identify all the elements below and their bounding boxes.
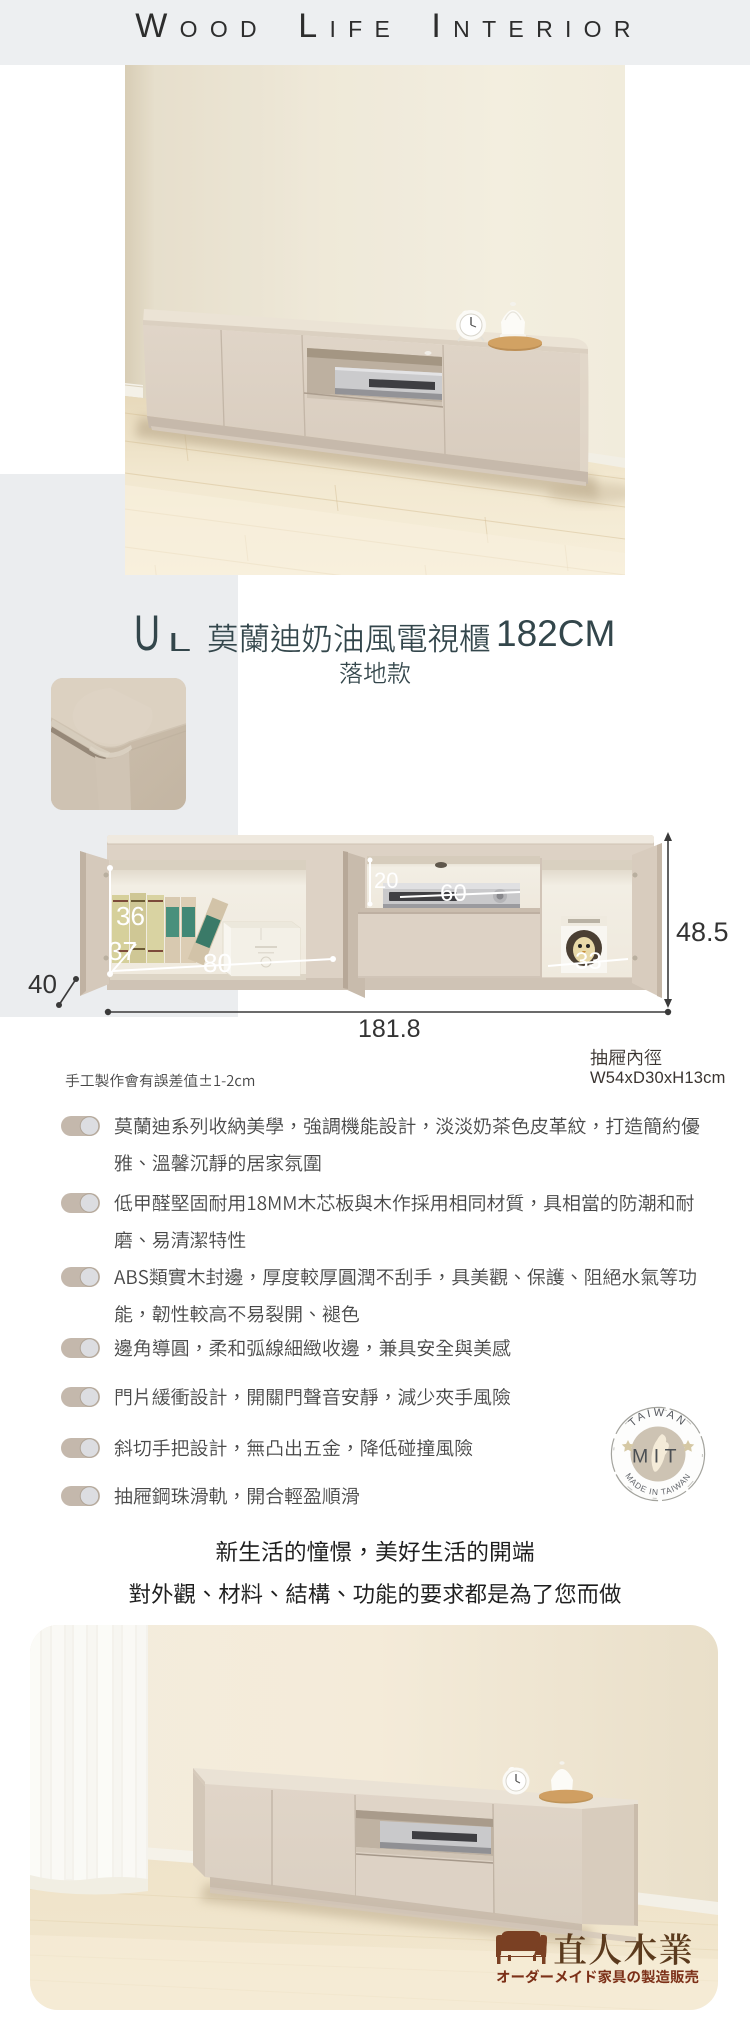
svg-text:MIT: MIT [632, 1446, 682, 1468]
svg-text:40: 40 [28, 969, 57, 999]
svg-text:36: 36 [116, 901, 145, 931]
svg-text:37: 37 [108, 936, 137, 966]
svg-text:181.8: 181.8 [358, 1015, 421, 1043]
svg-text:48.5: 48.5 [676, 917, 729, 947]
svg-text:33: 33 [575, 948, 602, 975]
svg-text:W54xD30xH13cm: W54xD30xH13cm [590, 1069, 726, 1087]
svg-text:20: 20 [374, 868, 398, 893]
svg-text:60: 60 [440, 880, 467, 907]
svg-text:80: 80 [203, 948, 232, 978]
